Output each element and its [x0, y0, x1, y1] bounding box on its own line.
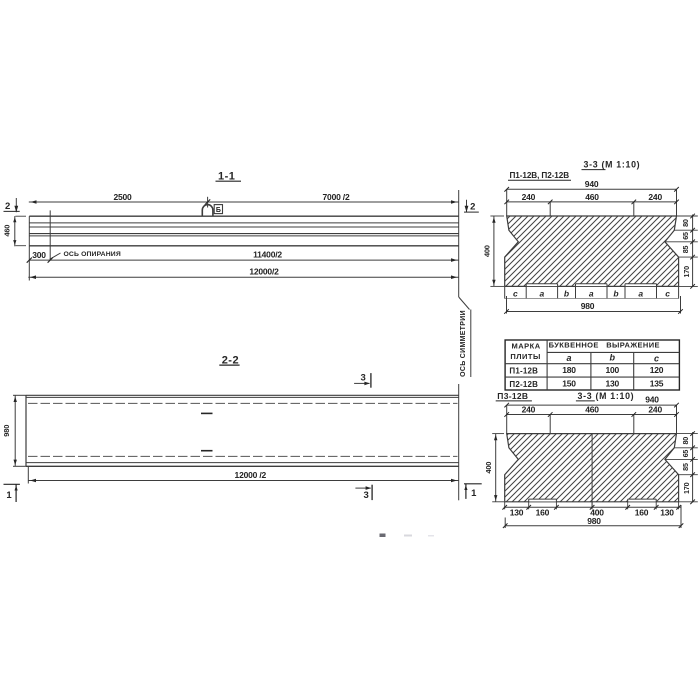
svg-text:b: b [610, 353, 616, 363]
svg-text:1: 1 [471, 488, 477, 499]
svg-text:130: 130 [660, 508, 674, 518]
svg-text:12000/2: 12000/2 [249, 267, 279, 277]
svg-text:170: 170 [682, 482, 691, 494]
svg-text:П2-12В: П2-12В [509, 380, 538, 389]
svg-text:120: 120 [650, 365, 664, 375]
svg-text:980: 980 [587, 516, 601, 526]
svg-text:2: 2 [470, 202, 475, 213]
svg-text:3-3 (М 1:10): 3-3 (М 1:10) [584, 160, 641, 170]
svg-text:БУКВЕННОЕ ВЫРАЖЕНИЕ: БУКВЕННОЕ ВЫРАЖЕНИЕ [549, 341, 660, 350]
svg-text:МАРКА: МАРКА [512, 341, 541, 350]
svg-text:240: 240 [648, 192, 662, 202]
svg-text:b: b [613, 288, 618, 298]
svg-text:940: 940 [645, 394, 659, 404]
svg-text:240: 240 [522, 192, 536, 202]
svg-text:П3-12В: П3-12В [497, 391, 528, 401]
svg-text:400: 400 [482, 245, 491, 257]
svg-text:Б: Б [216, 207, 221, 214]
svg-text:170: 170 [682, 266, 691, 278]
svg-text:980: 980 [2, 425, 11, 437]
svg-text:160: 160 [635, 508, 649, 518]
svg-text:80: 80 [681, 219, 690, 227]
svg-text:a: a [540, 288, 545, 298]
svg-text:11400/2: 11400/2 [253, 250, 282, 260]
svg-text:с: с [654, 353, 659, 363]
svg-text:65: 65 [681, 232, 690, 240]
svg-text:П1-12В, П2-12В: П1-12В, П2-12В [510, 171, 570, 180]
svg-text:940: 940 [585, 179, 599, 189]
svg-text:240: 240 [648, 404, 662, 414]
svg-text:150: 150 [562, 379, 576, 389]
svg-text:85: 85 [681, 463, 690, 471]
svg-text:85: 85 [681, 245, 690, 253]
svg-text:135: 135 [650, 379, 664, 389]
svg-text:3-3 (М 1:10): 3-3 (М 1:10) [578, 391, 635, 401]
svg-text:160: 160 [536, 508, 550, 518]
svg-text:300: 300 [32, 250, 46, 260]
svg-text:с: с [665, 288, 670, 298]
svg-text:400: 400 [484, 462, 493, 474]
svg-text:2500: 2500 [113, 192, 132, 202]
svg-text:7000 /2: 7000 /2 [323, 192, 350, 202]
svg-text:b: b [564, 288, 569, 298]
svg-text:a: a [589, 288, 594, 298]
svg-text:3: 3 [361, 373, 366, 384]
svg-text:a: a [638, 288, 643, 298]
svg-text:130: 130 [606, 379, 620, 389]
svg-text:a: a [566, 353, 571, 363]
svg-text:460: 460 [585, 192, 599, 202]
svg-text:100: 100 [606, 365, 620, 375]
svg-text:65: 65 [681, 450, 690, 458]
svg-text:ОСЬ СИММЕТРИИ: ОСЬ СИММЕТРИИ [460, 310, 467, 377]
svg-text:2: 2 [5, 201, 10, 212]
svg-text:3: 3 [363, 490, 368, 501]
svg-text:130: 130 [510, 508, 524, 518]
svg-text:ОСЬ ОПИРАНИЯ: ОСЬ ОПИРАНИЯ [64, 251, 121, 258]
svg-text:12000 /2: 12000 /2 [235, 470, 267, 480]
svg-text:П1-12В: П1-12В [509, 366, 538, 375]
svg-text:180: 180 [562, 365, 576, 375]
svg-text:980: 980 [581, 301, 595, 311]
svg-text:80: 80 [681, 437, 690, 445]
svg-text:ПЛИТЫ: ПЛИТЫ [510, 352, 540, 361]
svg-text:с: с [513, 288, 518, 298]
svg-text:1: 1 [6, 490, 12, 501]
svg-text:460: 460 [2, 225, 11, 237]
svg-text:460: 460 [585, 404, 599, 414]
svg-text:240: 240 [522, 404, 536, 414]
